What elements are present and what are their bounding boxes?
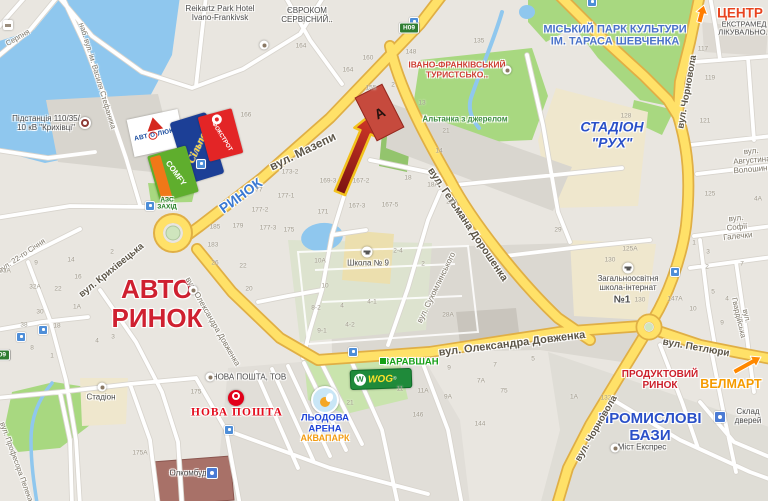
house-number: 4 bbox=[95, 337, 99, 344]
house-number: 1А bbox=[73, 303, 81, 310]
street-dovzhenka-label: вул. Олександра Довженка bbox=[438, 329, 586, 359]
house-number: 164 bbox=[296, 42, 307, 49]
house-number: 125А bbox=[622, 245, 637, 252]
transit-stop-icon[interactable] bbox=[348, 347, 358, 357]
house-number: 10 bbox=[321, 282, 328, 289]
house-number: 132 bbox=[601, 394, 612, 401]
house-number: 11 bbox=[397, 385, 404, 392]
poi-dot-icon[interactable] bbox=[611, 444, 620, 453]
house-number: 7А bbox=[477, 377, 485, 384]
transit-stop-icon[interactable] bbox=[38, 325, 48, 335]
house-number: 185 bbox=[210, 223, 221, 230]
street-pelekha-label: вул. Професора Пелека bbox=[0, 421, 34, 501]
house-number: 2 bbox=[421, 260, 425, 267]
house-number: 21 bbox=[442, 127, 449, 134]
house-number: 2 bbox=[110, 248, 114, 255]
pidstantsiya-label[interactable]: Підстанція 110/35/ 10 кВ "Крихівці" bbox=[12, 115, 80, 133]
poi-dot-icon[interactable] bbox=[260, 41, 269, 50]
house-number: 3 bbox=[706, 248, 710, 255]
house-number: 1А bbox=[570, 393, 578, 400]
poi-dot-icon[interactable] bbox=[98, 383, 107, 392]
akvapark-label: АКВАПАРК bbox=[301, 433, 350, 443]
house-number: 147А bbox=[667, 295, 682, 302]
house-number: 4 bbox=[725, 295, 729, 302]
sklad-dverei-label[interactable]: Склад дверей bbox=[735, 408, 762, 426]
house-number: 177-2 bbox=[252, 206, 269, 213]
house-number: 75 bbox=[500, 387, 507, 394]
mist-ekspres-label[interactable]: Міст Експрес bbox=[618, 444, 666, 453]
house-number: 3 bbox=[111, 333, 115, 340]
velmart-label: ВЕЛМАРТ bbox=[700, 377, 761, 391]
street-petliury-label: вул. Петлюри bbox=[662, 337, 731, 360]
transit-stop-icon[interactable] bbox=[670, 267, 680, 277]
house-number: 14 bbox=[67, 256, 74, 263]
house-number: 14 bbox=[435, 147, 442, 154]
house-number: 20 bbox=[245, 285, 252, 292]
nova-poshta-label: НОВА ПОШТА bbox=[191, 407, 283, 420]
house-number: 18 bbox=[53, 322, 60, 329]
business-poi-icon[interactable] bbox=[714, 411, 726, 423]
house-number: 8-2 bbox=[311, 304, 320, 311]
house-number: 33А bbox=[0, 267, 11, 274]
house-number: 160 bbox=[363, 54, 374, 61]
transit-stop-icon[interactable] bbox=[224, 425, 234, 435]
house-number: 9 bbox=[720, 319, 724, 326]
house-number: 29 bbox=[554, 226, 561, 233]
lodova-arena-label: ЛЬОДОВА АРЕНА bbox=[301, 413, 349, 434]
stadion-label[interactable]: Стадіон bbox=[86, 394, 115, 403]
house-number: 7 bbox=[740, 260, 744, 267]
house-number: 18А bbox=[427, 181, 439, 188]
house-number: 130 bbox=[605, 256, 616, 263]
house-number: 2 bbox=[705, 263, 709, 270]
house-number: 175 bbox=[284, 226, 295, 233]
house-number: 10 bbox=[689, 305, 696, 312]
house-number: 13 bbox=[418, 99, 425, 106]
business-poi-icon[interactable] bbox=[206, 467, 218, 479]
house-number: 164 bbox=[343, 66, 354, 73]
house-number: 18 bbox=[404, 174, 411, 181]
street-stefanyka-label: наб. вул. ім. Василя Стефаника bbox=[77, 22, 117, 130]
house-number: 177-1 bbox=[278, 192, 295, 199]
house-number: 177-3 bbox=[260, 224, 277, 231]
zaravshan-marker-icon[interactable] bbox=[379, 357, 387, 365]
poi-dot-icon[interactable] bbox=[503, 66, 512, 75]
house-number: 167-3 bbox=[349, 202, 366, 209]
house-number: 9-1 bbox=[317, 327, 326, 334]
street-mazepy-label: вул. Мазепи bbox=[268, 130, 339, 174]
house-number: 4-1 bbox=[367, 298, 376, 305]
house-number: 179 bbox=[233, 222, 244, 229]
house-number: 4 bbox=[340, 302, 344, 309]
house-number: 135 bbox=[474, 37, 485, 44]
house-number: 125 bbox=[705, 190, 716, 197]
altanka-label: Альтанка з джерелом bbox=[422, 116, 507, 125]
house-number: 148 bbox=[406, 48, 417, 55]
map-canvas[interactable]: А АВТОЛЮКС Сільпо ФОКСТРОТ COMFY W WOG ®… bbox=[0, 0, 768, 501]
house-number: 5 bbox=[531, 355, 535, 362]
street-hvardiiska-label: вул. Гвардійська bbox=[729, 295, 755, 339]
house-number: 171 bbox=[318, 208, 329, 215]
poi-dot-icon[interactable] bbox=[206, 373, 215, 382]
house-number: 121 bbox=[700, 117, 711, 124]
street-chornovola-north-label: вул. Чорновола bbox=[676, 54, 699, 129]
house-number: 16 bbox=[74, 273, 81, 280]
evrokom-label[interactable]: ЄВРОКОМ СЕРВІСНИЙ.. bbox=[281, 7, 333, 25]
power-substation-icon[interactable] bbox=[79, 117, 91, 129]
road-shield-h09: Н09 bbox=[399, 23, 419, 34]
park-shevchenko-label: МІСЬКИЙ ПАРК КУЛЬТУРИ ІМ. ТАРАСА ШЕВЧЕНК… bbox=[543, 24, 686, 49]
house-number: 146 bbox=[413, 411, 424, 418]
house-number: 32А bbox=[29, 283, 41, 290]
house-number: 119 bbox=[705, 74, 715, 81]
lodging-icon[interactable] bbox=[3, 20, 13, 30]
house-number: 144 bbox=[475, 420, 486, 427]
house-number: 4А bbox=[754, 195, 762, 202]
reikartz-hotel-label[interactable]: Reikartz Park Hotel Ivano-Frankivsk bbox=[186, 5, 255, 23]
house-number: 26 bbox=[211, 259, 218, 266]
house-number: 130 bbox=[635, 296, 646, 303]
house-number: 9А bbox=[444, 393, 452, 400]
centr-label: ЦЕНТР bbox=[717, 5, 763, 20]
house-number: 28А bbox=[442, 311, 454, 318]
ekstramed-label[interactable]: ЕКСТРАМЕД ЛІКУВАЛЬНО.. bbox=[718, 21, 768, 38]
house-number: 169-3 bbox=[320, 177, 337, 184]
street-halechky-label: вул. Софії Галечки bbox=[720, 213, 754, 243]
house-number: 7 bbox=[493, 361, 497, 368]
house-number: 155 bbox=[366, 84, 377, 91]
house-number: 22 bbox=[239, 262, 246, 269]
house-number: 128 bbox=[621, 112, 632, 119]
house-number: 21 bbox=[346, 399, 353, 406]
nova-poshta-tov-label[interactable]: НОВА ПОШТА, ТОВ bbox=[212, 374, 286, 383]
stadion-rukh-label: СТАДІОН "РУХ" bbox=[580, 119, 643, 150]
house-number: 175 bbox=[191, 388, 202, 395]
transit-stop-icon[interactable] bbox=[145, 201, 155, 211]
turyst-poi-label: ІВАНО-ФРАНКІВСЬКИЙ ТУРИСТСЬКО.. bbox=[408, 60, 505, 79]
house-number: 173-2 bbox=[282, 168, 299, 175]
house-number: 8 bbox=[30, 344, 34, 351]
street-serpnya-label: Серпня bbox=[5, 28, 32, 48]
house-number: 22 bbox=[54, 285, 61, 292]
house-number: 22А bbox=[446, 198, 458, 205]
house-number: 11А bbox=[417, 387, 428, 394]
house-number: 2 bbox=[391, 81, 395, 88]
produktovyi-rynok-label: ПРОДУКТОВИЙ РИНОК bbox=[622, 369, 698, 391]
house-number: 117 bbox=[698, 45, 708, 52]
labels-layer: МІСЬКИЙ ПАРК КУЛЬТУРИ ІМ. ТАРАСА ШЕВЧЕНК… bbox=[0, 0, 768, 501]
promyslovi-bazy-label: ПРОМИСЛОВІ БАЗИ bbox=[598, 411, 701, 445]
house-number: 9 bbox=[447, 364, 451, 371]
internat-n1-label[interactable]: №1 bbox=[614, 294, 631, 305]
poi-dot-icon[interactable] bbox=[189, 286, 198, 295]
shkola-9-label[interactable]: Школа № 9 bbox=[347, 260, 389, 269]
street-voloshyna-label: вул. Августина Волошина bbox=[732, 146, 768, 176]
transit-stop-icon[interactable] bbox=[16, 332, 26, 342]
house-number: 183 bbox=[208, 241, 219, 248]
house-number: 77 bbox=[255, 186, 262, 193]
zaravshan-label: ЗАРАВШАН bbox=[383, 358, 438, 369]
school-icon[interactable] bbox=[623, 263, 634, 274]
transit-stop-icon[interactable] bbox=[196, 159, 206, 169]
road-shield-h09: Н09 bbox=[0, 350, 10, 361]
house-number: 166 bbox=[241, 111, 252, 118]
internat-label[interactable]: Загальноосвітня школа-інтернат bbox=[597, 275, 658, 293]
house-number: 10А bbox=[314, 257, 326, 264]
house-number: 4-2 bbox=[345, 321, 354, 328]
school-icon[interactable] bbox=[362, 247, 373, 258]
house-number: 175А bbox=[132, 449, 147, 456]
house-number: 2-4 bbox=[393, 247, 402, 254]
house-number: 30 bbox=[36, 308, 43, 315]
transit-stop-icon[interactable] bbox=[587, 0, 597, 7]
house-number: 5 bbox=[711, 288, 715, 295]
azs-zahid-label: АЗС ЗАХІД bbox=[157, 197, 177, 212]
olkombud-label[interactable]: Олкомбуд bbox=[169, 470, 206, 479]
house-number: 1 bbox=[50, 352, 54, 359]
house-number: 167-2 bbox=[353, 177, 370, 184]
house-number: 167-5 bbox=[382, 201, 399, 208]
house-number: 1 bbox=[692, 239, 696, 246]
house-number: 38 bbox=[20, 321, 27, 328]
house-number: 9 bbox=[34, 259, 38, 266]
